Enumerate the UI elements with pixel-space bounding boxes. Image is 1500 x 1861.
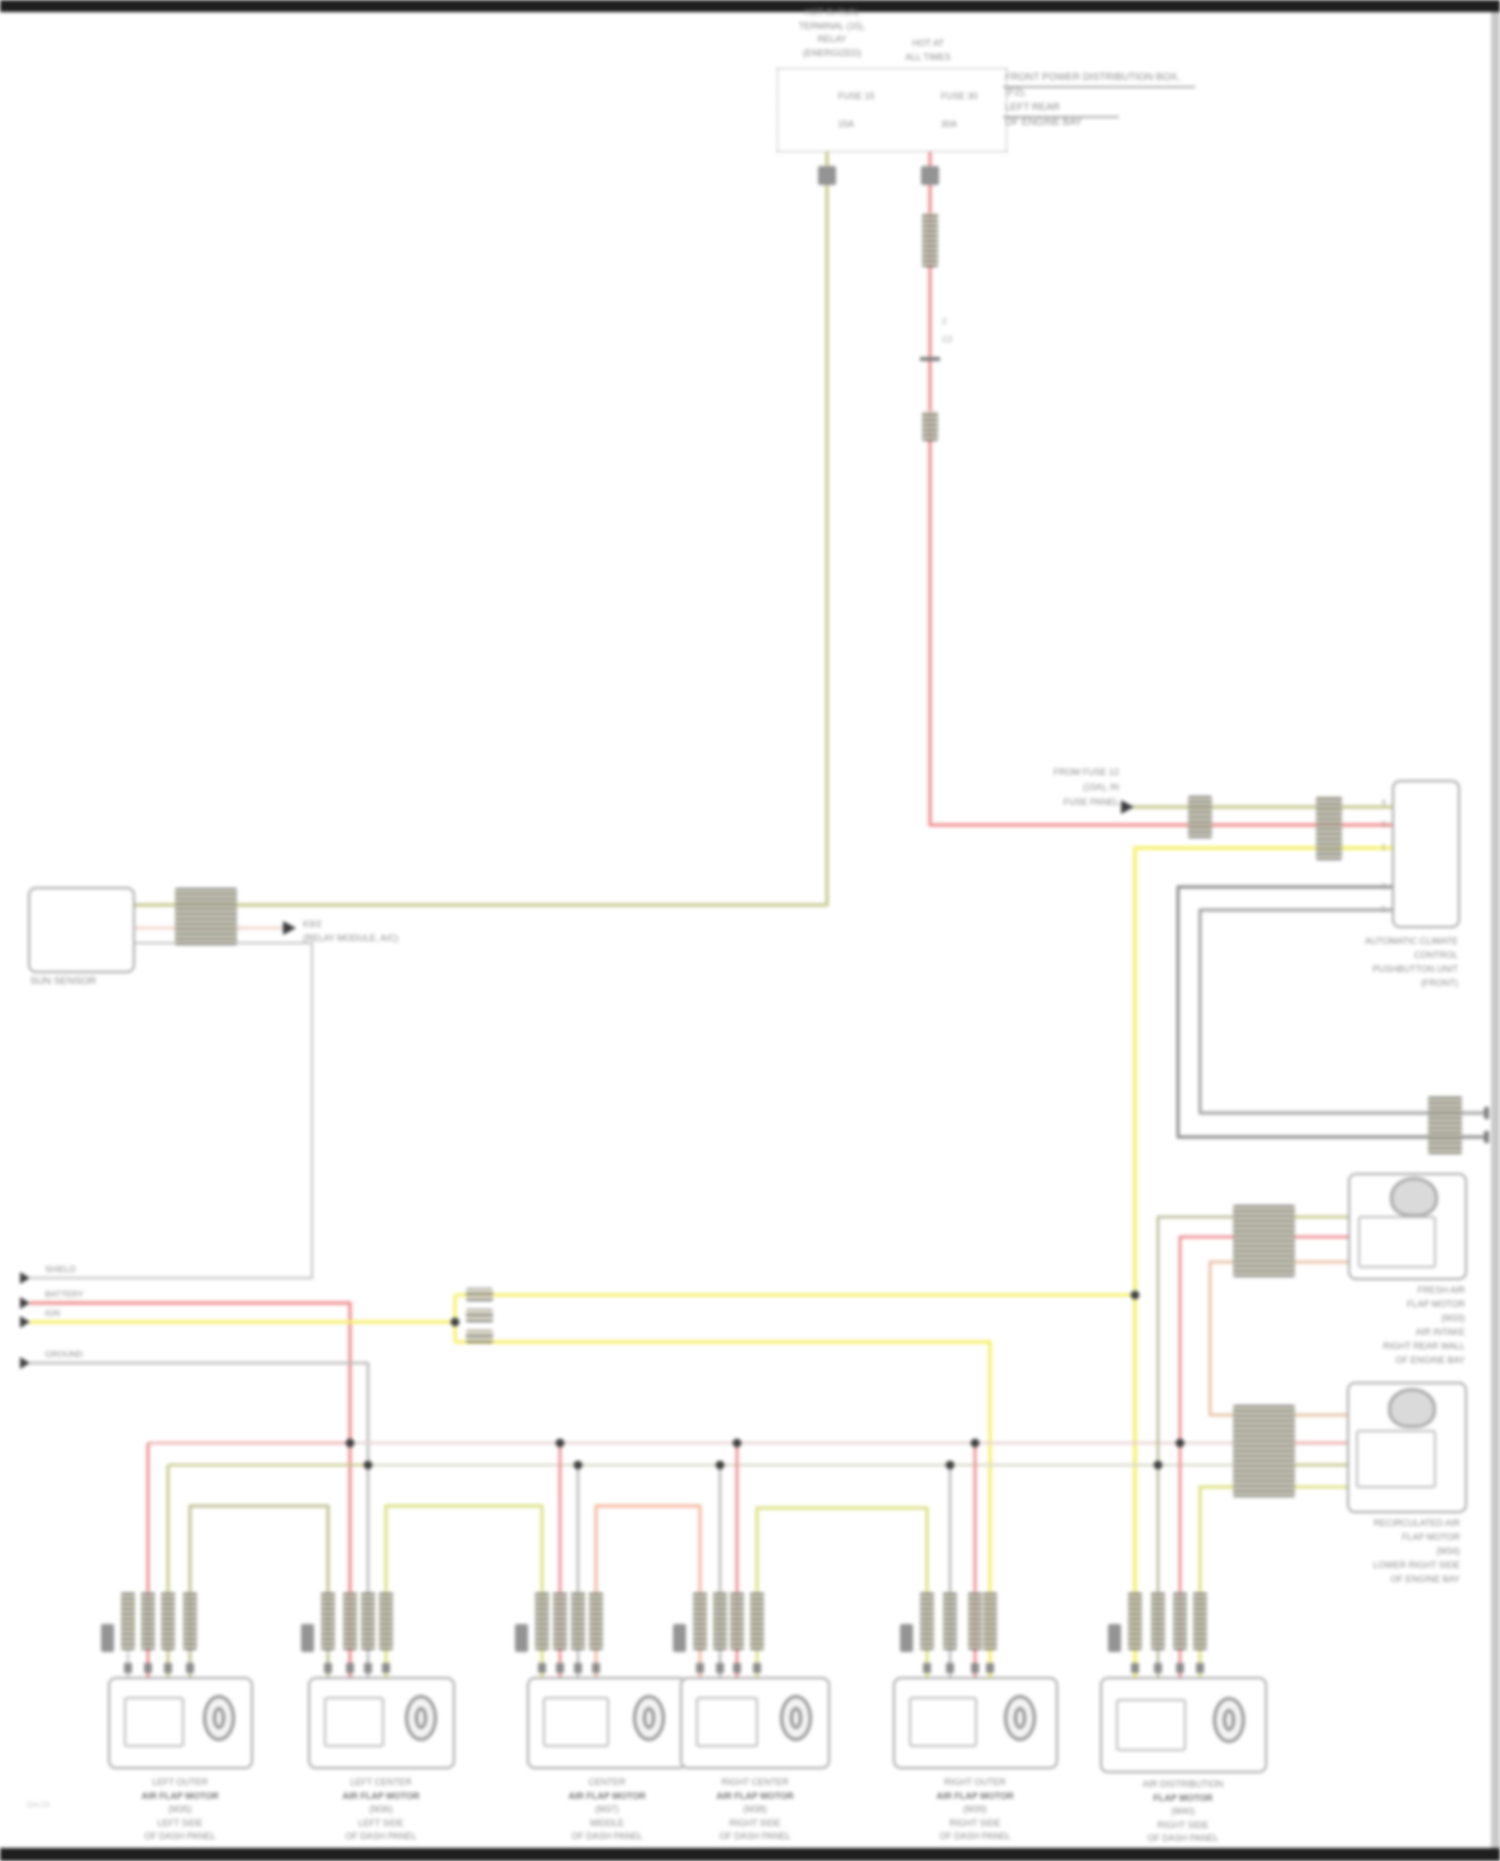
hot-at-all-times-label: HOT ATALL TIMES	[882, 37, 974, 64]
wire-olive-fuse-to-sensor	[135, 124, 827, 905]
fuse2-amps: 30A	[941, 118, 957, 132]
red-wire-mark-2: C2	[942, 335, 952, 344]
box-location-note: FRONT POWER DISTRIBUTION BOX,(F2), LEFT …	[1005, 70, 1205, 130]
motor-icon-6	[1213, 1697, 1245, 1743]
sensor-connector	[175, 888, 237, 945]
yellow-inline-connector-2	[466, 1309, 493, 1322]
yellow-inline-connector-1	[466, 1288, 493, 1301]
fuse2-name: FUSE 30	[941, 90, 978, 104]
bundle-connector-2	[1316, 796, 1342, 860]
sensor-label: SUN SENSOR	[30, 975, 140, 989]
wire-red-fuse-to-module	[930, 124, 1392, 825]
red-wire-connector-1	[922, 213, 938, 267]
motor-icon-4	[780, 1695, 812, 1741]
wiring-diagram-page: HOT IN RUN,TERMINAL (15), RELAY(ENERGIZE…	[0, 0, 1500, 1861]
diagram-canvas: HOT IN RUN,TERMINAL (15), RELAY(ENERGIZE…	[0, 0, 1500, 1861]
climate-control-module	[1392, 780, 1460, 928]
red-wire-connector-2	[922, 411, 938, 441]
yellow-inline-connector-3	[466, 1330, 493, 1343]
motor-icon-3	[633, 1695, 665, 1741]
motor-icon-5	[1004, 1695, 1036, 1741]
flap-motor-6-label: AIR DISTRIBUTIONFLAP MOTOR(M40) RIGHT SI…	[1108, 1778, 1258, 1846]
compB-label: RECIRCULATED AIRFLAP MOTOR(M34) LOWER RI…	[1322, 1516, 1460, 1586]
fuse2-connector	[921, 166, 939, 185]
bundle-connector-1	[1188, 796, 1212, 838]
gray-loop-connector	[1428, 1096, 1462, 1154]
offpage-arrows	[20, 800, 1134, 1369]
compB-connector	[1233, 1405, 1295, 1497]
ignition-wire-label: IGN	[45, 1307, 60, 1321]
compA-connector	[1233, 1205, 1295, 1277]
module-label: AUTOMATIC CLIMATECONTROL PUSHBUTTON UNIT…	[1340, 934, 1458, 990]
ground-wire-label: GROUND	[45, 1348, 83, 1362]
flap-motor-4-label: RIGHT CENTERAIR FLAP MOTOR(M38) RIGHT SI…	[680, 1776, 830, 1844]
compB-motor-icon	[1388, 1388, 1436, 1428]
motor-icon-2	[405, 1695, 437, 1741]
flap-motor-3-label: CENTERAIR FLAP MOTOR(M37) MIDDLEOF DASH …	[532, 1776, 682, 1844]
fuse1-connector	[818, 166, 836, 185]
sensor-output-label: K9/2(RELAY MODULE, A/C)	[303, 917, 398, 945]
power-distribution-box	[777, 68, 1007, 152]
flap-motor-5-label: RIGHT OUTERAIR FLAP MOTOR(M39) RIGHT SID…	[900, 1776, 1050, 1844]
wire-gray-left-feed	[30, 1363, 368, 1677]
relay-hot-label: HOT IN RUN,TERMINAL (15), RELAY(ENERGIZE…	[768, 6, 896, 60]
sun-sensor	[28, 887, 135, 973]
fuse1-amps: 15A	[838, 118, 854, 132]
olive-source-label: FROM FUSE 12(15A), INFUSE PANEL	[1015, 765, 1119, 810]
shield-wire-label: SHIELD	[45, 1263, 76, 1277]
battery-wire-label: BATTERY	[45, 1288, 83, 1302]
fuse1-name: FUSE 15	[838, 90, 875, 104]
watermark: 104-23	[26, 1800, 49, 1809]
motor-icon-1	[203, 1695, 235, 1741]
wire-sensor-shield	[30, 943, 312, 1278]
flap-motor-1-label: LEFT OUTERAIR FLAP MOTOR(M35) LEFT SIDEO…	[105, 1776, 255, 1844]
compA-motor-icon	[1390, 1177, 1438, 1217]
compA-to-compB-tan	[1210, 1262, 1233, 1415]
flap-motor-2-label: LEFT CENTERAIR FLAP MOTOR(M36) LEFT SIDE…	[306, 1776, 456, 1844]
compA-label: FRESH AIRFLAP MOTOR(M33) AIR INTAKERIGHT…	[1330, 1283, 1465, 1367]
red-wire-mark-1: 2	[942, 317, 946, 326]
